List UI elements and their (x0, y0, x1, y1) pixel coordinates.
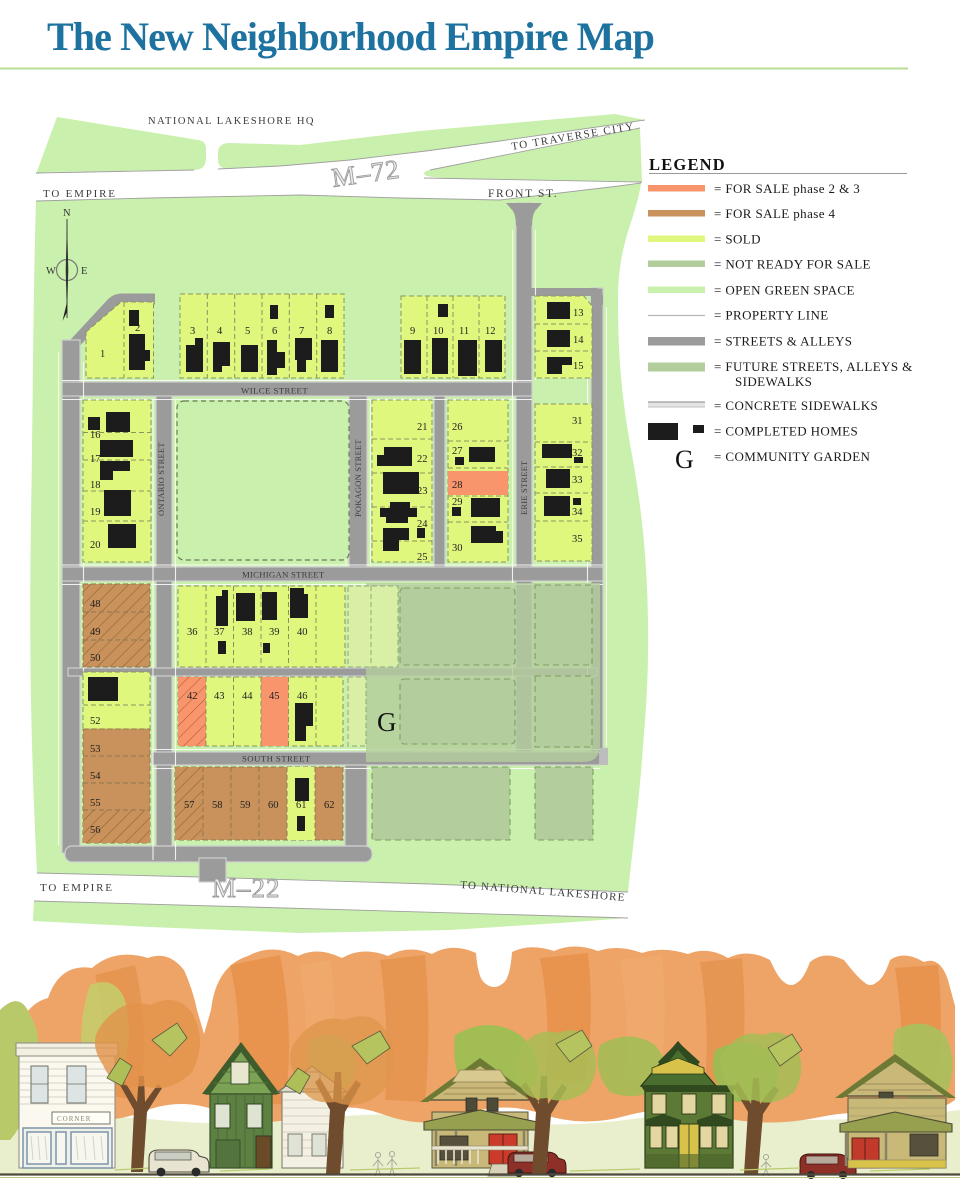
svg-text:= PROPERTY LINE: = PROPERTY LINE (714, 308, 829, 323)
svg-text:POKAGON STREET: POKAGON STREET (353, 439, 363, 517)
svg-text:54: 54 (90, 771, 101, 782)
svg-text:25: 25 (417, 552, 428, 563)
svg-text:46: 46 (297, 691, 308, 702)
svg-text:37: 37 (214, 627, 225, 638)
svg-text:44: 44 (242, 691, 253, 702)
svg-text:60: 60 (268, 800, 279, 811)
svg-text:28: 28 (452, 480, 463, 491)
svg-text:The New Neighborhood Empire Ma: The New Neighborhood Empire Map (47, 14, 654, 59)
svg-text:20: 20 (90, 540, 101, 551)
svg-text:9: 9 (410, 326, 415, 337)
svg-text:31: 31 (572, 416, 583, 427)
svg-text:15: 15 (573, 361, 584, 372)
svg-text:W: W (46, 266, 56, 277)
svg-text:13: 13 (573, 308, 584, 319)
svg-text:= CONCRETE SIDEWALKS: = CONCRETE SIDEWALKS (714, 398, 878, 413)
svg-text:21: 21 (417, 422, 428, 433)
svg-text:52: 52 (90, 716, 101, 727)
svg-text:= COMPLETED HOMES: = COMPLETED HOMES (714, 424, 858, 439)
svg-text:59: 59 (240, 800, 251, 811)
svg-text:36: 36 (187, 627, 198, 638)
svg-text:49: 49 (90, 627, 101, 638)
svg-text:22: 22 (417, 454, 428, 465)
svg-text:61: 61 (296, 800, 307, 811)
svg-text:7: 7 (299, 326, 304, 337)
svg-text:5: 5 (245, 326, 250, 337)
svg-text:= OPEN GREEN SPACE: = OPEN GREEN SPACE (714, 283, 855, 298)
svg-text:LEGEND: LEGEND (649, 155, 726, 174)
svg-text:18: 18 (90, 480, 101, 491)
svg-text:45: 45 (269, 691, 280, 702)
svg-text:40: 40 (297, 627, 308, 638)
svg-text:CORNER: CORNER (57, 1115, 91, 1123)
svg-text:E: E (81, 266, 87, 277)
svg-text:11: 11 (459, 326, 469, 337)
svg-text:G: G (675, 445, 694, 474)
svg-text:26: 26 (452, 422, 463, 433)
svg-text:G: G (377, 707, 397, 737)
svg-text:38: 38 (242, 627, 253, 638)
svg-text:= FOR SALE phase 2 & 3: = FOR SALE phase 2 & 3 (714, 181, 860, 196)
svg-text:17: 17 (90, 454, 101, 465)
svg-text:29: 29 (452, 497, 463, 508)
svg-text:56: 56 (90, 825, 101, 836)
svg-text:19: 19 (90, 507, 101, 518)
svg-text:14: 14 (573, 335, 584, 346)
svg-text:ONTARIO STREET: ONTARIO STREET (156, 442, 166, 516)
svg-text:ERIE STREET: ERIE STREET (519, 460, 529, 515)
svg-text:62: 62 (324, 800, 335, 811)
svg-text:58: 58 (212, 800, 223, 811)
svg-text:1: 1 (100, 349, 105, 360)
svg-text:39: 39 (269, 627, 280, 638)
svg-text:34: 34 (572, 507, 583, 518)
svg-text:27: 27 (452, 446, 463, 457)
svg-text:35: 35 (572, 534, 583, 545)
svg-text:SOUTH STREET: SOUTH STREET (242, 754, 311, 764)
svg-text:WILCE STREET: WILCE STREET (241, 386, 308, 396)
svg-text:8: 8 (327, 326, 332, 337)
svg-text:= COMMUNITY GARDEN: = COMMUNITY GARDEN (714, 449, 871, 464)
svg-text:NATIONAL LAKESHORE HQ: NATIONAL LAKESHORE HQ (148, 116, 315, 127)
svg-text:4: 4 (217, 326, 223, 337)
svg-text:50: 50 (90, 653, 101, 664)
svg-text:SIDEWALKS: SIDEWALKS (735, 374, 812, 389)
svg-text:MICHIGAN STREET: MICHIGAN STREET (242, 570, 325, 580)
svg-text:TO EMPIRE: TO EMPIRE (40, 882, 114, 894)
svg-text:= SOLD: = SOLD (714, 232, 761, 247)
svg-text:16: 16 (90, 430, 101, 441)
svg-text:33: 33 (572, 475, 583, 486)
svg-text:6: 6 (272, 326, 277, 337)
svg-text:53: 53 (90, 744, 101, 755)
svg-text:12: 12 (485, 326, 496, 337)
svg-text:3: 3 (190, 326, 195, 337)
svg-text:M–22: M–22 (212, 873, 281, 903)
svg-text:TO EMPIRE: TO EMPIRE (43, 188, 117, 200)
svg-text:= FOR SALE phase 4: = FOR SALE phase 4 (714, 206, 836, 221)
svg-text:FRONT ST.: FRONT ST. (488, 188, 558, 200)
svg-text:55: 55 (90, 798, 101, 809)
svg-text:10: 10 (433, 326, 444, 337)
svg-text:57: 57 (184, 800, 195, 811)
svg-text:= FUTURE STREETS, ALLEYS &: = FUTURE STREETS, ALLEYS & (714, 359, 913, 374)
svg-text:48: 48 (90, 599, 101, 610)
svg-text:42: 42 (187, 691, 198, 702)
svg-text:= NOT READY FOR SALE: = NOT READY FOR SALE (714, 257, 871, 272)
svg-text:30: 30 (452, 543, 463, 554)
svg-text:= STREETS & ALLEYS: = STREETS & ALLEYS (714, 334, 852, 349)
svg-text:N: N (63, 208, 71, 219)
svg-text:43: 43 (214, 691, 225, 702)
